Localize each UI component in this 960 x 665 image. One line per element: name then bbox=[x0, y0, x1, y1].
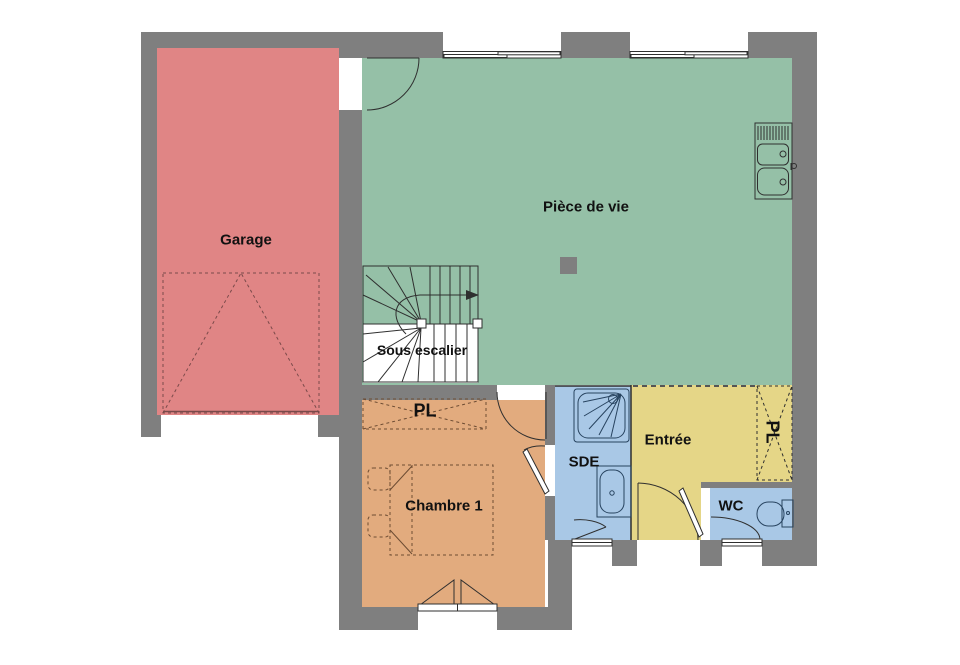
label-under-stairs: Sous escalier bbox=[377, 342, 467, 358]
room-entrance-low bbox=[631, 482, 701, 540]
label-living-room: Pièce de vie bbox=[543, 199, 629, 216]
label-garage: Garage bbox=[220, 232, 272, 249]
wall-garage-top bbox=[141, 32, 339, 48]
wall-wc-top bbox=[701, 482, 792, 488]
door-opening-bedroom bbox=[497, 385, 545, 400]
front-door-opening bbox=[637, 540, 700, 566]
wall-west-spine bbox=[339, 110, 362, 630]
wall-bottom-seg2 bbox=[700, 540, 722, 566]
window-opening-sde bbox=[572, 546, 612, 566]
window-opening-living-2 bbox=[630, 32, 748, 52]
label-entrance-closet: PL bbox=[762, 420, 783, 443]
door-opening-garage bbox=[339, 58, 362, 110]
window-opening-wc bbox=[722, 546, 762, 566]
wall-left bbox=[141, 32, 157, 437]
wall-living-bottom bbox=[362, 385, 497, 400]
window-opening-bedroom bbox=[418, 611, 497, 630]
label-bedroom: Chambre 1 bbox=[405, 498, 483, 515]
door-opening-sde bbox=[545, 445, 555, 496]
garage-door-opening bbox=[161, 415, 318, 437]
wall-bottom-seg1 bbox=[612, 540, 637, 566]
label-toilet: WC bbox=[719, 498, 744, 515]
label-entrance: Entrée bbox=[645, 432, 692, 449]
window-wc bbox=[722, 539, 762, 546]
wall-bedroom-sde-bottom bbox=[545, 496, 555, 540]
label-shower-room: SDE bbox=[569, 454, 600, 471]
label-bedroom-closet: PL bbox=[413, 401, 436, 422]
window-opening-living-1 bbox=[443, 32, 561, 52]
door-opening-wc bbox=[701, 488, 710, 540]
wall-bedroom-sde-top bbox=[545, 385, 555, 445]
window-sde bbox=[572, 539, 612, 546]
wall-garage-bottom-left bbox=[141, 415, 161, 437]
column-living bbox=[560, 257, 577, 274]
wall-right bbox=[792, 32, 817, 566]
floor-plan: Garage Pièce de vie Sous escalier PL Cha… bbox=[0, 0, 960, 665]
